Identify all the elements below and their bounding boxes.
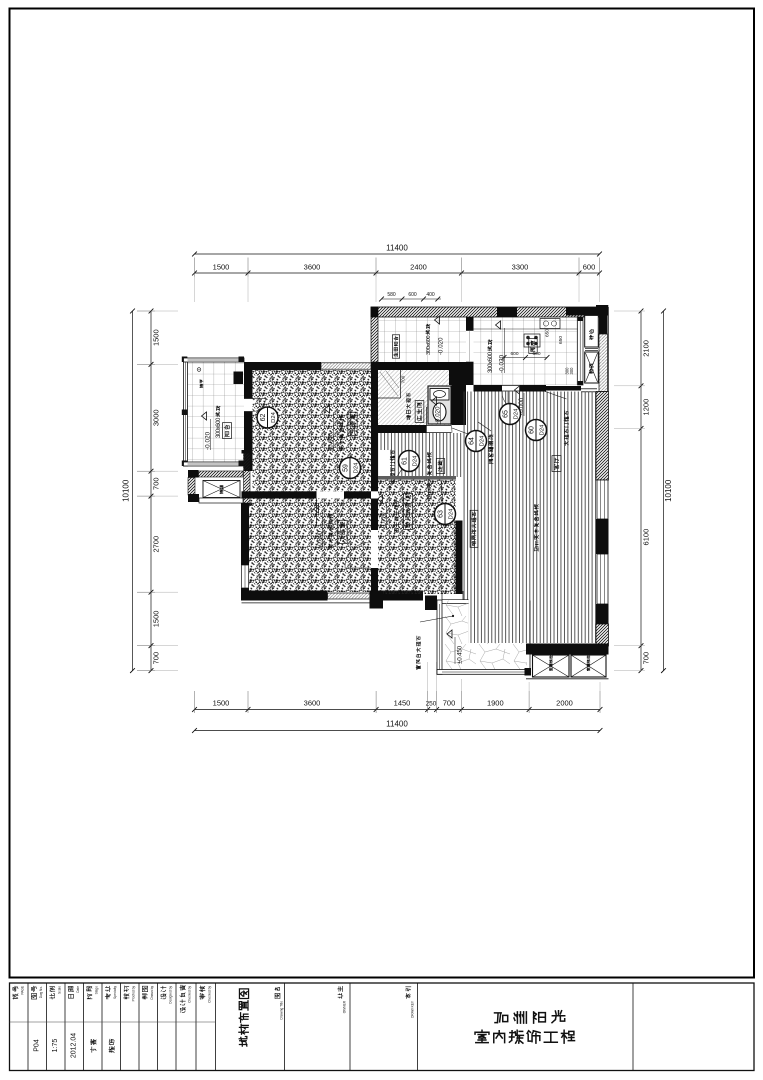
svg-text:600: 600 (583, 263, 596, 272)
svg-text:1500: 1500 (152, 611, 161, 628)
svg-text:D24: D24 (413, 455, 419, 466)
svg-text:700: 700 (152, 477, 161, 490)
svg-text:1:75: 1:75 (52, 1039, 59, 1053)
svg-text:Stage: Stage (94, 986, 98, 995)
svg-text:D24: D24 (354, 462, 360, 473)
svg-text:Proofed by: Proofed by (131, 986, 135, 1002)
svg-text:600: 600 (532, 351, 540, 357)
svg-text:700: 700 (642, 652, 651, 665)
svg-text:D24: D24 (540, 424, 546, 435)
svg-text:300x600: 300x600 (487, 351, 494, 373)
svg-text:600: 600 (510, 351, 518, 357)
svg-text:300x600: 300x600 (426, 335, 432, 355)
svg-text:300x600: 300x600 (216, 417, 222, 438)
svg-text:2012.04: 2012.04 (71, 1033, 78, 1058)
svg-text:Drawing Title: Drawing Title (280, 1001, 284, 1020)
svg-text:DRAW KEY: DRAW KEY (411, 1000, 415, 1018)
svg-text:61: 61 (402, 457, 409, 465)
svg-text:10100: 10100 (664, 479, 673, 502)
svg-text:Dwg No.: Dwg No. (39, 986, 43, 998)
svg-text:59: 59 (343, 464, 350, 472)
svg-text:700: 700 (152, 652, 161, 665)
svg-text:2400: 2400 (410, 263, 427, 272)
svg-text:650: 650 (545, 329, 551, 337)
svg-text:Date: Date (76, 986, 80, 993)
svg-text:400: 400 (426, 292, 435, 298)
svg-text:2100: 2100 (642, 340, 651, 357)
svg-text:11400: 11400 (386, 244, 408, 253)
svg-text:Checked by: Checked by (188, 986, 192, 1003)
svg-text:D24: D24 (514, 408, 520, 419)
svg-text:1500: 1500 (213, 699, 230, 708)
svg-text:62: 62 (260, 414, 267, 422)
svg-text:Checked by: Checked by (207, 986, 211, 1003)
svg-text:64: 64 (469, 437, 476, 445)
svg-text:1900: 1900 (487, 699, 504, 708)
svg-text:700: 700 (401, 375, 406, 383)
svg-text:1450: 1450 (394, 699, 411, 708)
svg-text:1500: 1500 (152, 329, 161, 346)
svg-text:1200: 1200 (642, 399, 651, 416)
svg-text:D24: D24 (271, 411, 277, 422)
svg-text:2000: 2000 (556, 699, 573, 708)
svg-text:3600: 3600 (304, 699, 321, 708)
svg-text:60: 60 (529, 426, 536, 434)
svg-text:650: 650 (558, 336, 564, 344)
svg-text:OWNER: OWNER (343, 1000, 347, 1013)
svg-text:10100: 10100 (122, 479, 131, 502)
svg-text:PAGE: PAGE (20, 986, 24, 995)
svg-text:Designed by: Designed by (168, 986, 172, 1004)
svg-text:65: 65 (503, 410, 510, 418)
svg-text:250: 250 (426, 701, 437, 708)
svg-text:D24: D24 (449, 508, 455, 519)
svg-text:3000: 3000 (152, 409, 161, 426)
svg-text:300: 300 (569, 367, 574, 375)
svg-text:11400: 11400 (386, 720, 408, 729)
svg-text:Specialty: Specialty (113, 986, 117, 999)
svg-text:63: 63 (438, 510, 445, 518)
svg-text:12mm: 12mm (534, 540, 540, 552)
svg-text:700: 700 (443, 699, 456, 708)
svg-text:6100: 6100 (642, 529, 651, 546)
svg-text:1500: 1500 (213, 263, 230, 272)
svg-text:600: 600 (408, 292, 417, 298)
svg-text:580: 580 (387, 292, 396, 298)
svg-text:Drawn by: Drawn by (150, 986, 154, 1000)
svg-text:D24: D24 (480, 435, 486, 446)
svg-text:±0.450: ±0.450 (457, 645, 464, 664)
svg-text:Scale: Scale (57, 986, 61, 994)
svg-text:2700: 2700 (152, 536, 161, 553)
svg-text:-0.020: -0.020 (438, 337, 444, 355)
svg-text:P04: P04 (34, 1039, 41, 1052)
svg-text:3300: 3300 (512, 263, 529, 272)
svg-text:3600: 3600 (304, 263, 321, 272)
